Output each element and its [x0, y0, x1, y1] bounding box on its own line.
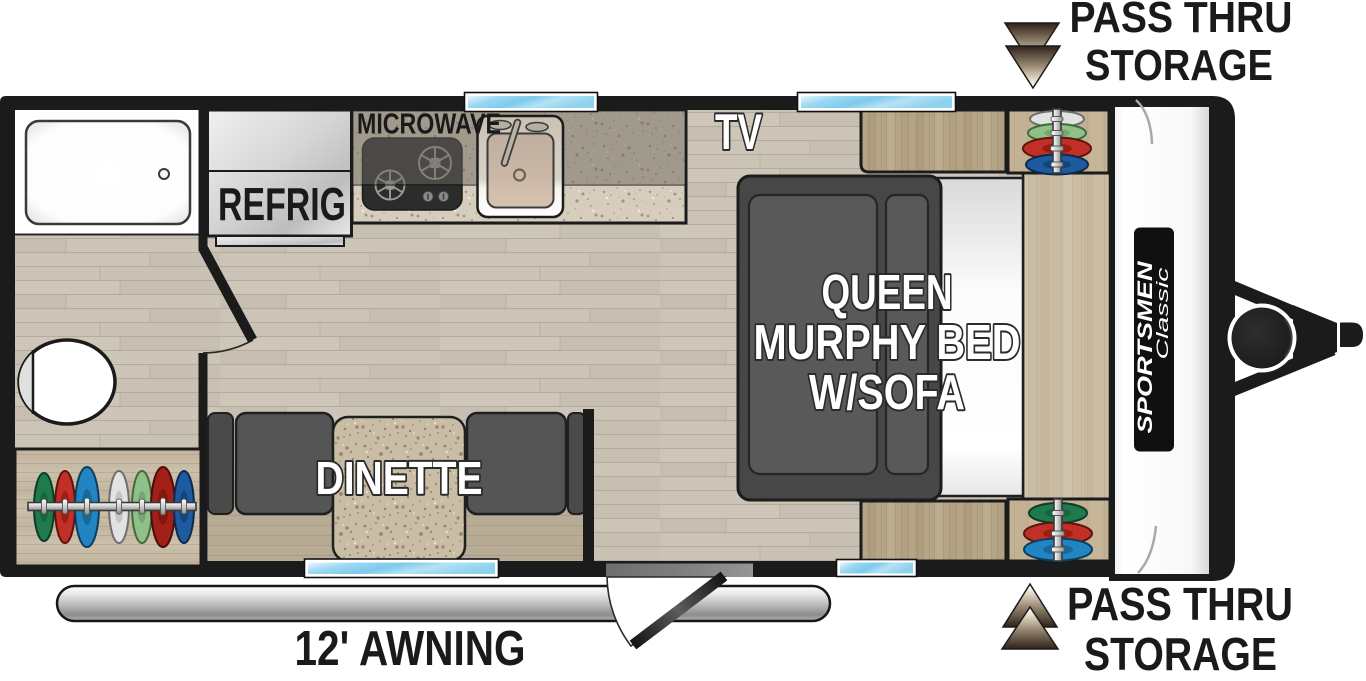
svg-text:REFRIG: REFRIG — [218, 178, 346, 230]
svg-text:QUEEN: QUEEN — [822, 266, 953, 320]
svg-text:MURPHY BED: MURPHY BED — [754, 316, 1021, 370]
svg-text:DINETTE: DINETTE — [316, 452, 483, 504]
svg-text:PASS THRU: PASS THRU — [1067, 578, 1293, 630]
svg-text:STORAGE: STORAGE — [1085, 41, 1273, 90]
svg-text:12' AWNING: 12' AWNING — [295, 622, 526, 676]
svg-text:STORAGE: STORAGE — [1084, 628, 1277, 676]
svg-text:TV: TV — [715, 104, 762, 160]
svg-text:MICROWAVE: MICROWAVE — [357, 109, 501, 141]
svg-text:PASS THRU: PASS THRU — [1070, 0, 1293, 42]
svg-text:Classic: Classic — [1153, 267, 1172, 360]
svg-text:W/SOFA: W/SOFA — [809, 366, 965, 420]
